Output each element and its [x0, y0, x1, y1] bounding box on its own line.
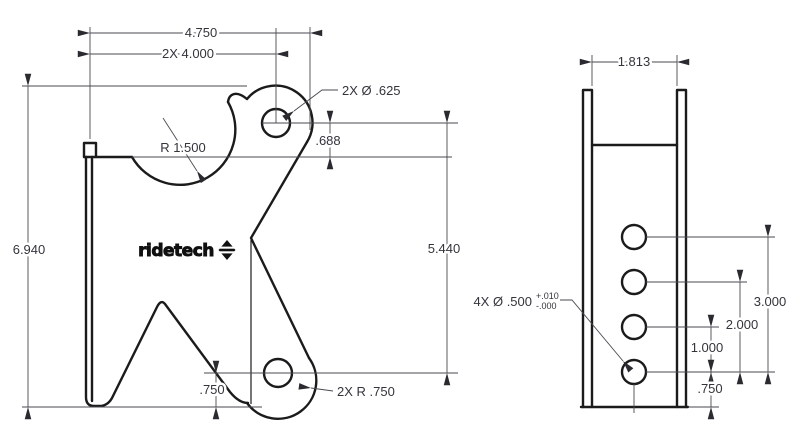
dim-span-two: 2.000 [726, 317, 759, 332]
front-view: 4.750 2X 4.000 2X Ø .625 R 1.500 .688 6.… [13, 25, 461, 419]
tolerance-minus: -.000 [536, 301, 557, 311]
right-edge [251, 142, 309, 358]
callout-top-holes: 2X Ø .625 [342, 83, 401, 98]
side-part-outline [581, 90, 688, 407]
top-lug-arc [247, 86, 312, 142]
dim-cutout-radius: R 1.500 [160, 140, 206, 155]
dim-side-width: 1.813 [618, 54, 651, 69]
side-view: 1.813 4X Ø .500 +.010 -.000 3.000 2.000 … [473, 54, 786, 413]
dim-bottom-hole-offset: .750 [199, 382, 224, 397]
dim-height-overall: 6.940 [13, 242, 46, 257]
tolerance-plus: +.010 [536, 291, 559, 301]
left-flange [583, 90, 592, 407]
dim-span-one: 1.000 [691, 340, 724, 355]
dim-side-bottom-offset: .750 [697, 381, 722, 396]
dim-hole-to-hole: 5.440 [428, 241, 461, 256]
left-and-vee-edge [86, 157, 248, 406]
bottom-lug-arc [247, 358, 316, 419]
hole-4 [622, 360, 646, 384]
technical-drawing: 4.750 2X 4.000 2X Ø .625 R 1.500 .688 6.… [0, 0, 800, 446]
ridetech-logo: ridetech [138, 240, 236, 261]
top-transition-curve [228, 94, 247, 102]
hole-2 [622, 270, 646, 294]
top-left-notch [84, 143, 96, 157]
dim-hole-spacing: 2X 4.000 [162, 46, 214, 61]
dim-width-overall: 4.750 [185, 25, 218, 40]
callout-bottom-radius: 2X R .750 [337, 384, 395, 399]
side-extension-lines [592, 55, 775, 413]
callout-side-holes: 4X Ø .500 [473, 294, 532, 309]
top-holes-leader [294, 90, 338, 111]
hole-1 [622, 225, 646, 249]
dim-top-hole-offset: .688 [315, 133, 340, 148]
drawing-sheet: 4.750 2X 4.000 2X Ø .625 R 1.500 .688 6.… [0, 0, 800, 446]
right-flange [677, 90, 686, 407]
ridetech-shock-icon [218, 240, 236, 260]
ridetech-logo-text: ridetech [138, 241, 214, 261]
dim-span-three: 3.000 [754, 294, 787, 309]
hole-3 [622, 315, 646, 339]
